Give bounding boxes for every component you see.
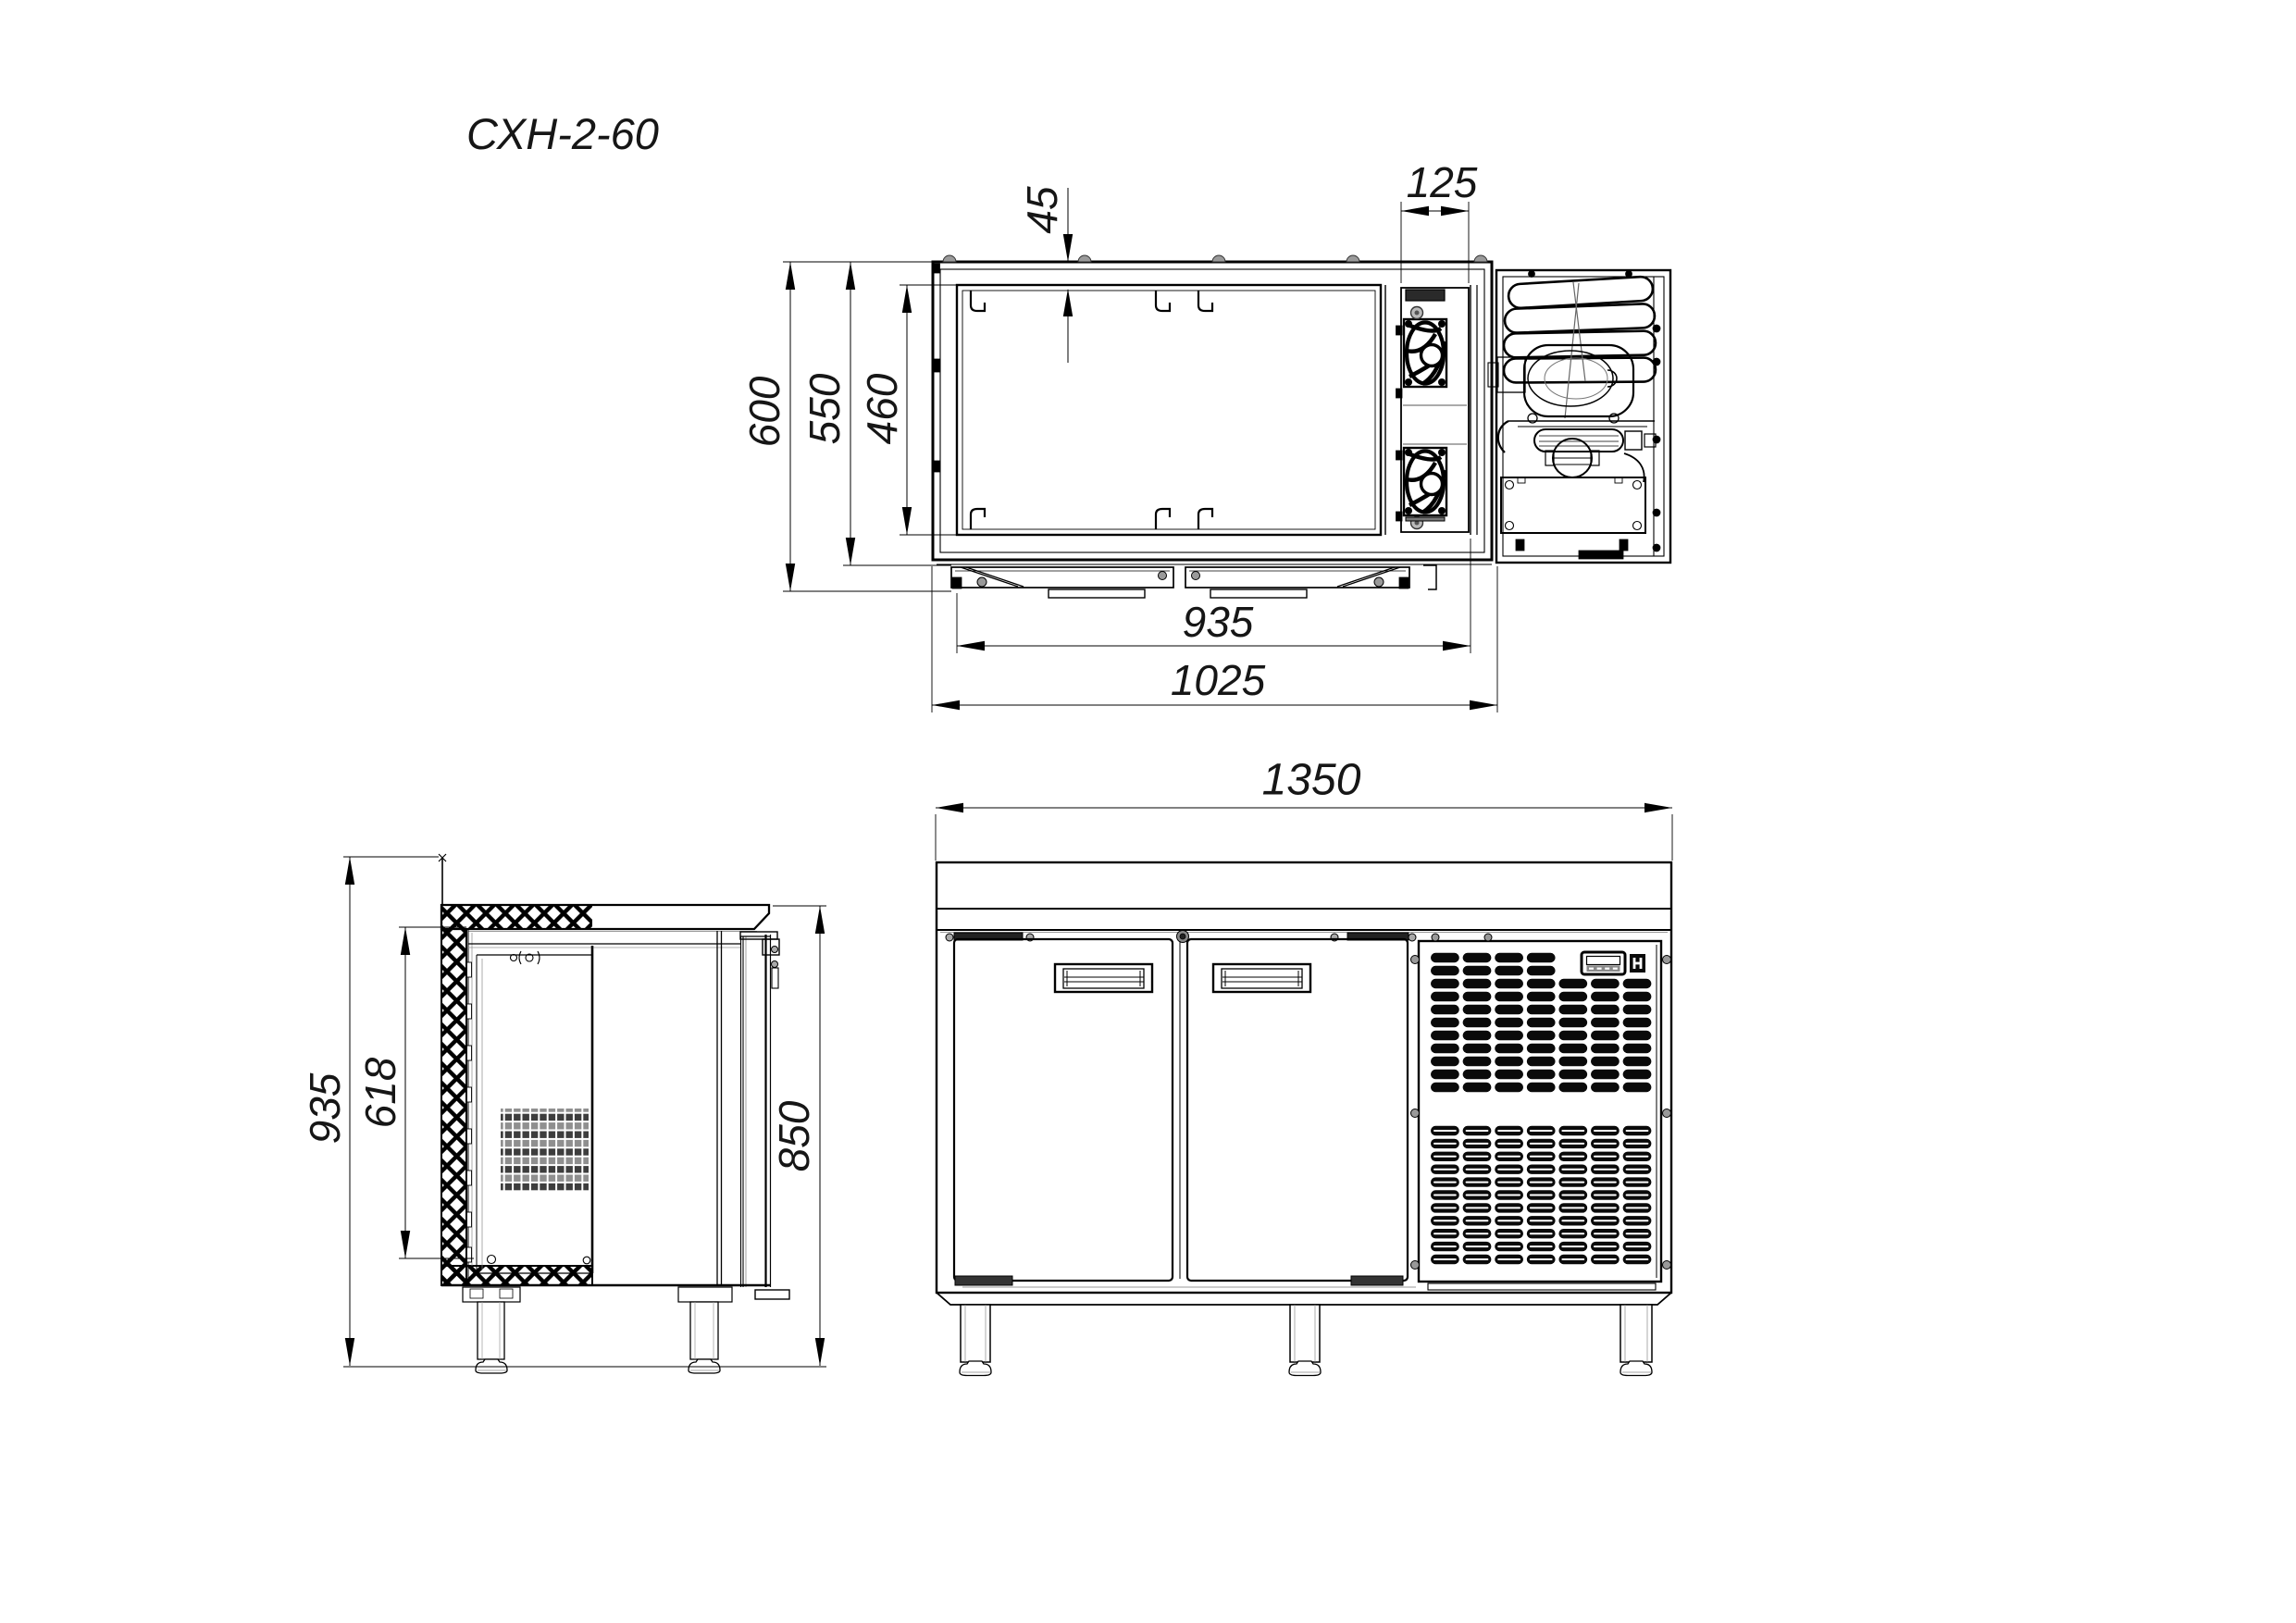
svg-text:600: 600: [740, 376, 788, 447]
svg-text:935: 935: [1183, 598, 1254, 646]
svg-text:1350: 1350: [1262, 756, 1361, 805]
svg-text:125: 125: [1407, 158, 1478, 206]
svg-text:45: 45: [1018, 186, 1066, 234]
svg-text:СХН-2-60: СХН-2-60: [466, 109, 659, 158]
svg-text:460: 460: [858, 373, 906, 444]
svg-text:550: 550: [800, 373, 849, 444]
svg-text:850: 850: [770, 1100, 818, 1171]
svg-text:1025: 1025: [1171, 656, 1266, 704]
svg-text:935: 935: [301, 1072, 349, 1144]
svg-text:618: 618: [356, 1057, 404, 1128]
